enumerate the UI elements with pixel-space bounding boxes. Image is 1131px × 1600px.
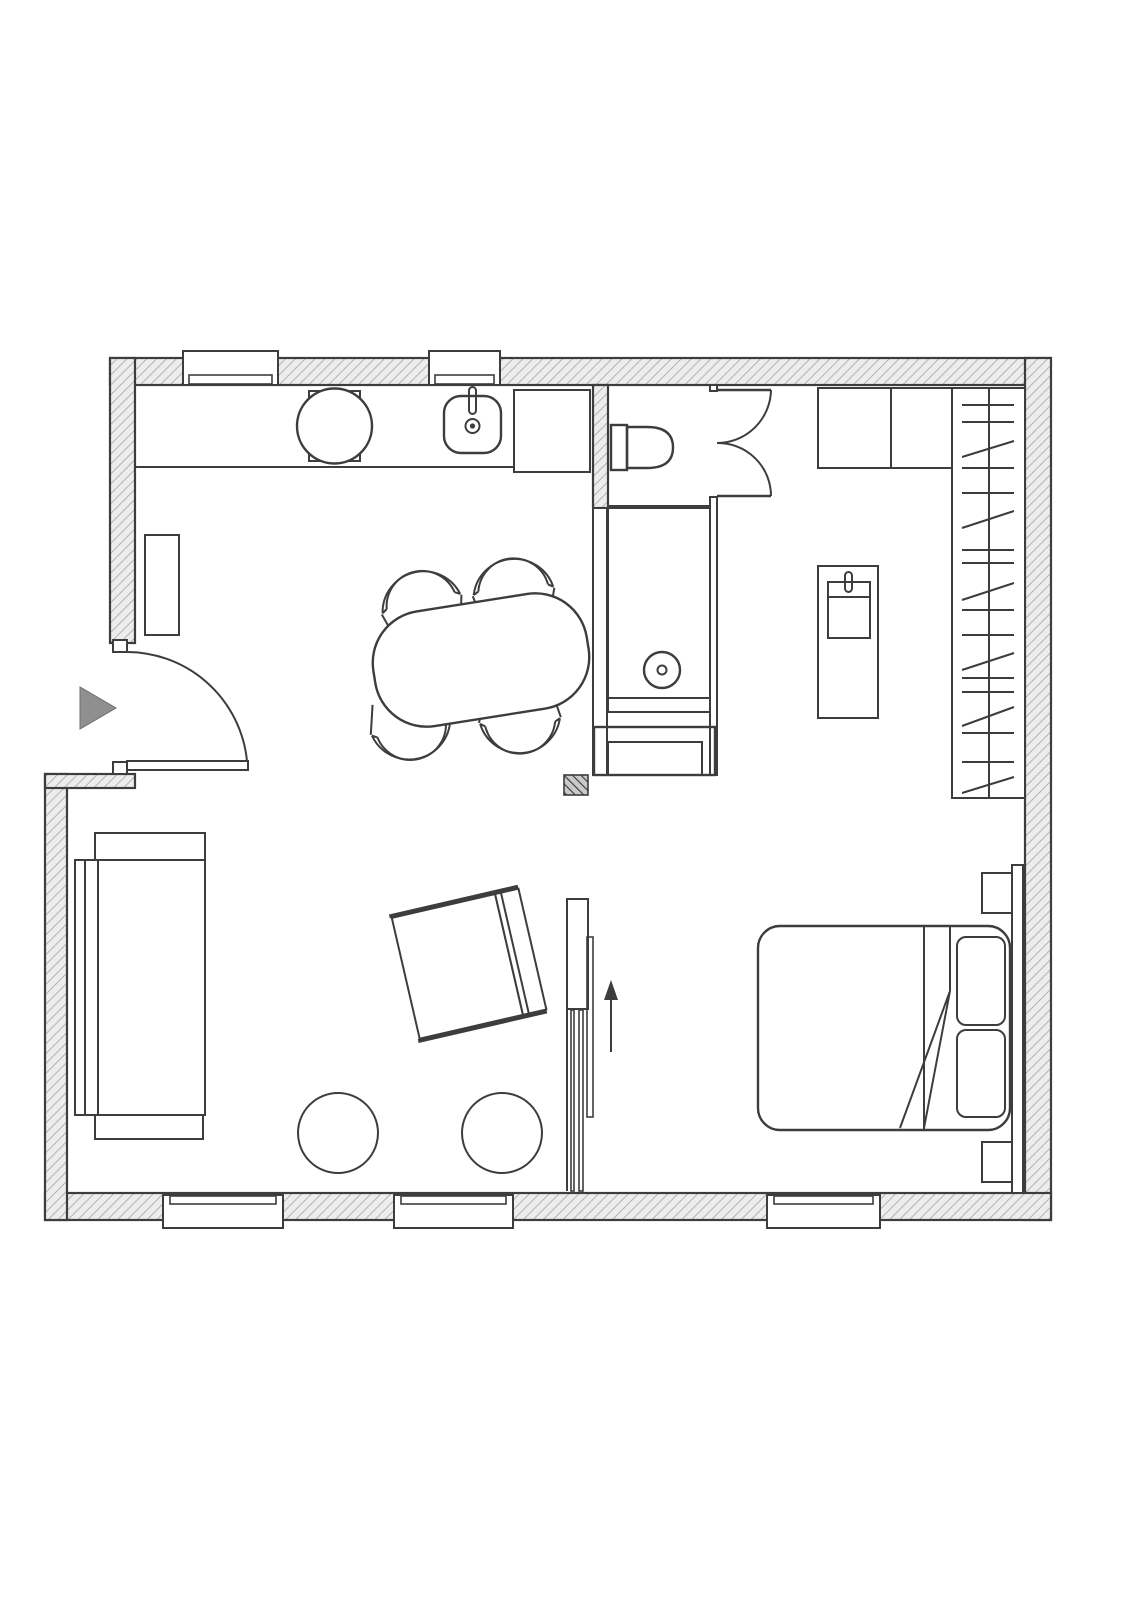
headboard-panel <box>1012 865 1023 1193</box>
wall-right <box>1025 358 1051 1220</box>
direction-arrow <box>604 980 618 1052</box>
entrance-arrow <box>80 687 116 729</box>
window-bottom-left <box>163 1195 283 1228</box>
dining-area <box>365 554 597 767</box>
shower-edge-band <box>608 698 710 712</box>
shower-drain-center <box>658 666 667 675</box>
oval-dining-table <box>365 586 596 734</box>
entry-door-swing-arc <box>123 652 247 761</box>
toilet-bowl <box>627 427 673 468</box>
bathroom-double-door <box>717 390 771 496</box>
window-top-kitchen <box>429 351 500 385</box>
living-area <box>75 833 618 1191</box>
shower <box>608 508 710 712</box>
sofa <box>75 833 205 1139</box>
window-bottom-middle <box>394 1195 513 1228</box>
upper-cabinet <box>891 388 952 468</box>
divider-panel <box>567 899 588 1009</box>
shower-tray <box>608 508 710 698</box>
armchair <box>389 887 546 1041</box>
nightstand <box>982 873 1012 913</box>
toilet <box>611 425 673 470</box>
sofa-armrest <box>95 833 205 860</box>
toilet-cistern <box>611 425 627 470</box>
pouf <box>298 1093 378 1173</box>
nightstand <box>982 1142 1012 1182</box>
window-top-left <box>183 351 278 385</box>
bathroom <box>593 385 771 775</box>
service-column <box>564 775 588 795</box>
floor-plan-drawing <box>0 0 1131 1600</box>
tall-appliance <box>514 390 590 472</box>
dressing-area <box>818 388 1025 798</box>
wall-left-lower <box>45 774 67 1220</box>
pouf <box>462 1093 542 1173</box>
sofa-seat <box>98 860 205 1115</box>
bedroom <box>758 865 1023 1193</box>
window-bottom-bedroom <box>767 1195 880 1228</box>
bathroom-cabinet <box>594 727 715 775</box>
wall-bathroom-pillar <box>593 385 608 508</box>
wardrobe <box>952 388 1025 798</box>
sliding-room-divider <box>567 899 593 1191</box>
door-frame-bottom <box>113 762 127 774</box>
wall-left-jog <box>45 774 135 788</box>
entry-door <box>113 640 248 774</box>
kitchen-sink <box>444 387 501 453</box>
shower-drain-icon <box>644 652 680 688</box>
double-door-swing-arcs <box>717 390 771 496</box>
bathroom-wall-right-stub <box>710 385 717 391</box>
upper-cabinet <box>818 388 891 468</box>
sofa-backrest <box>75 860 85 1115</box>
tall-cabinet <box>145 535 179 635</box>
washbasin-console <box>818 566 878 718</box>
door-frame-top <box>113 640 127 652</box>
wall-left-upper <box>110 358 135 643</box>
double-bed <box>758 926 1010 1130</box>
floor-plan-page <box>0 0 1131 1600</box>
round-appliance <box>297 389 372 464</box>
sofa-armrest <box>95 1115 203 1139</box>
entry-door-leaf <box>127 761 248 770</box>
